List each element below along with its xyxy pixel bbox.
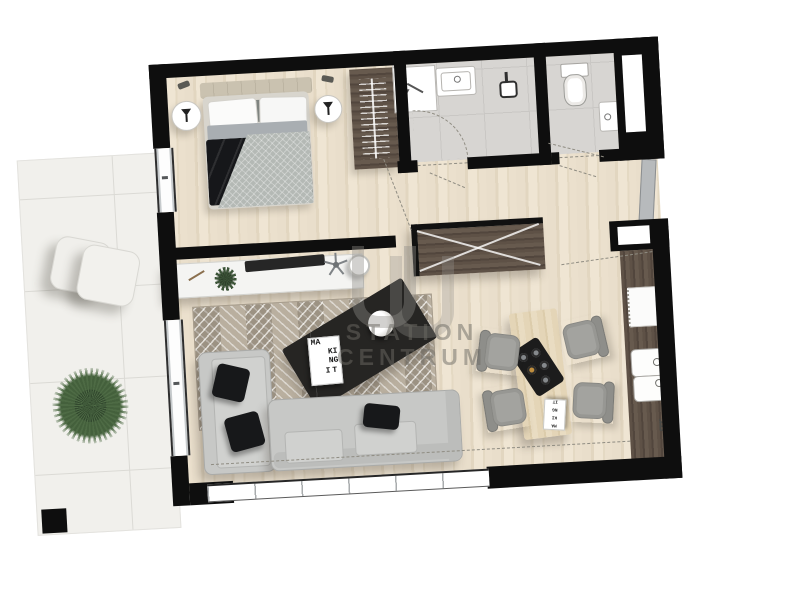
chair-seat bbox=[489, 387, 528, 428]
shower-head-icon bbox=[499, 72, 514, 97]
wall-left-c bbox=[170, 455, 190, 506]
lamp-icon-stem bbox=[327, 108, 329, 115]
kitchen-niche bbox=[617, 225, 650, 245]
wall-wc-south-left bbox=[551, 152, 560, 164]
wardrobe-hangers bbox=[359, 78, 390, 159]
office-chair bbox=[323, 252, 348, 277]
entry-closet bbox=[411, 217, 546, 276]
card-line: MA bbox=[549, 423, 560, 428]
sofa-pillow bbox=[362, 403, 400, 431]
hob-burner bbox=[538, 359, 550, 371]
shaft-niche bbox=[622, 54, 646, 132]
dining-chair bbox=[569, 378, 615, 424]
double-bed bbox=[202, 91, 314, 210]
card-line: KI bbox=[549, 415, 560, 420]
chair-seat bbox=[483, 332, 521, 372]
chair-seat bbox=[572, 382, 608, 420]
door-handle bbox=[173, 382, 179, 385]
closet-x-line bbox=[419, 223, 538, 272]
card-line: IT bbox=[550, 399, 561, 404]
shower-arrow bbox=[407, 83, 423, 93]
toilet-bowl bbox=[563, 74, 588, 107]
shower-head-body bbox=[499, 80, 518, 98]
hob-burner bbox=[530, 347, 542, 359]
hob-burner-brass bbox=[526, 364, 538, 376]
toilet bbox=[560, 63, 588, 108]
washbasin bbox=[435, 66, 477, 97]
lounge-chair bbox=[75, 243, 142, 309]
poster-line: IT bbox=[311, 365, 342, 377]
faucet-icon bbox=[604, 113, 611, 120]
lamp-icon-stem bbox=[185, 115, 187, 122]
dining-chair bbox=[481, 382, 531, 432]
wall-bath-south-left bbox=[397, 160, 418, 173]
dining-chair bbox=[476, 327, 525, 376]
door-handle bbox=[162, 176, 168, 179]
decor-sphere bbox=[363, 306, 399, 342]
table-magazine: MA KI NG IT bbox=[543, 399, 566, 431]
card-line: NG bbox=[549, 407, 560, 412]
bedroom-terrace-door bbox=[154, 148, 177, 213]
floor-plan-canvas: MA KI NG IT bbox=[0, 0, 800, 595]
terrace-column bbox=[41, 508, 67, 533]
hob-burner bbox=[539, 374, 551, 386]
floor-plan: MA KI NG IT bbox=[0, 7, 710, 557]
poster: MA KI NG IT bbox=[307, 335, 343, 386]
